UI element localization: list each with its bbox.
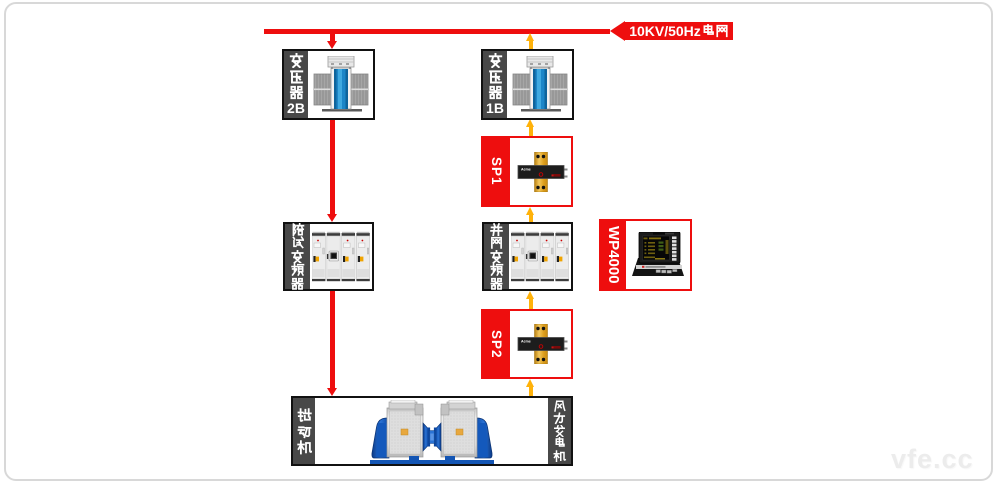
svg-text:Acme: Acme — [521, 167, 531, 171]
svg-text:Acme: Acme — [521, 340, 531, 344]
